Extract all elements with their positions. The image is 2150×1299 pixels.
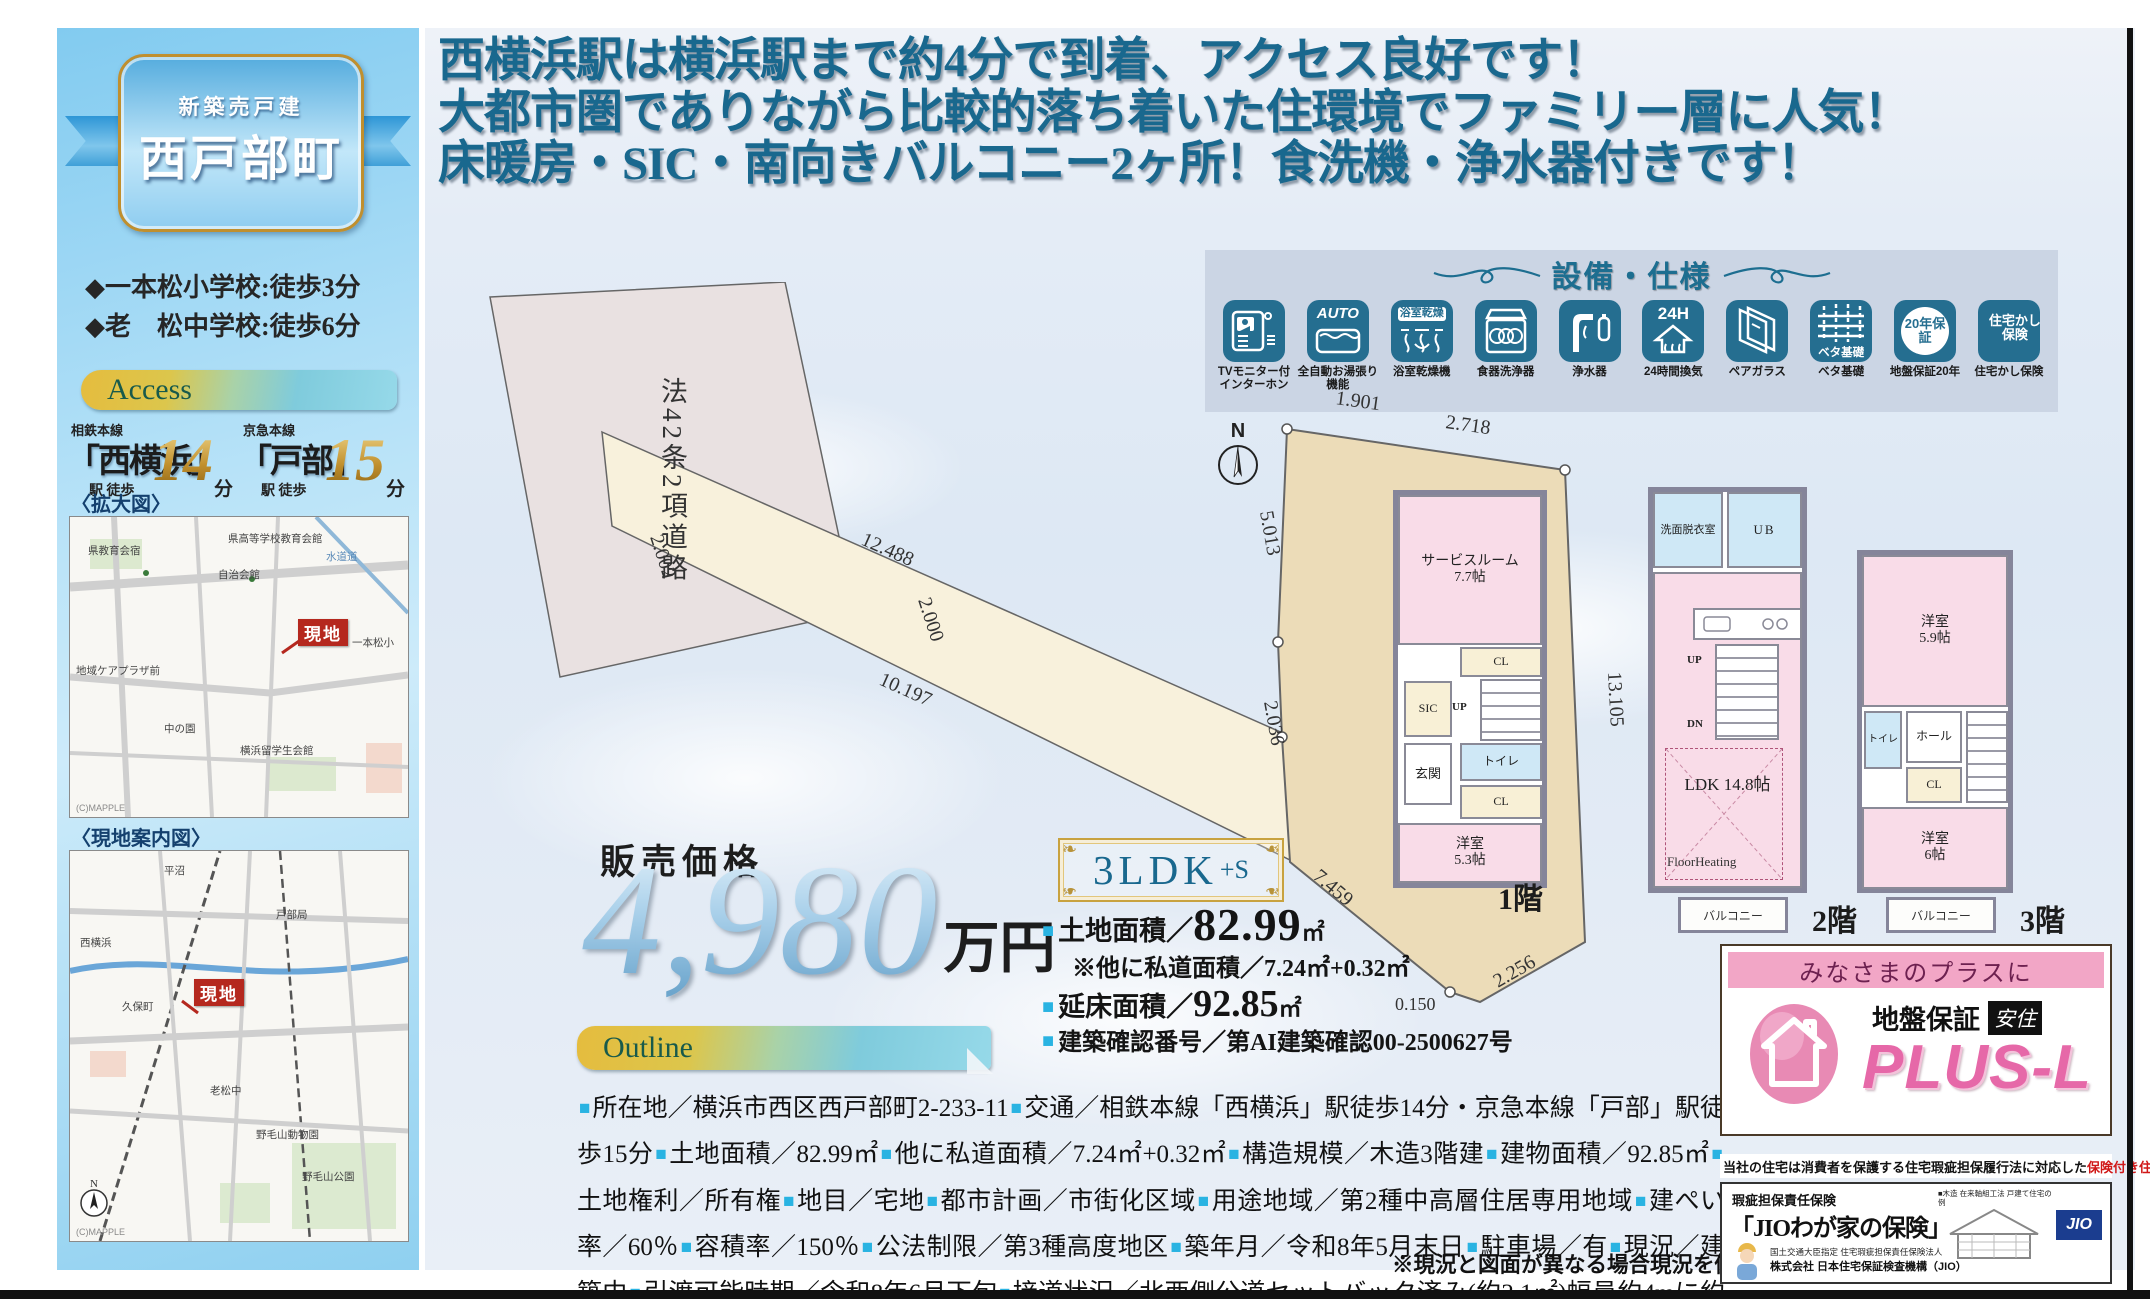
equipment-item: 20年保証 地盤保証20年 <box>1884 300 1966 392</box>
ground-warranty-icon: 20年保証 <box>1894 300 1956 362</box>
map-credit: (C)MAPPLE <box>76 803 125 813</box>
badge-subtitle: 新築売戸建 <box>121 91 361 121</box>
room-toilet-3f: トイレ <box>1864 711 1902 769</box>
land-area-unit: ㎡ <box>1302 920 1325 945</box>
insurance-type: 瑕疵担保責任保険 <box>1732 1190 1836 1209</box>
map1-title: 〈拡大図〉 <box>71 488 171 517</box>
map-label: 地域ケアプラザ前 <box>76 663 160 678</box>
plusl-house-icon <box>1744 998 1844 1110</box>
layout-plus: +S <box>1220 855 1249 885</box>
floor-area-line: ■延床面積／92.85㎡ <box>1042 982 1302 1026</box>
map-compass-n: N <box>90 1178 98 1190</box>
access-header: Access <box>81 370 397 410</box>
slab-badge: ベタ基礎 <box>1810 347 1872 359</box>
map-label: 中の園 <box>164 721 196 736</box>
ldk-label: LDK 14.8帖 <box>1653 770 1802 795</box>
map-label: 自治会館 <box>218 567 260 582</box>
room-size: 14.8帖 <box>1724 775 1771 794</box>
equipment-caption: 住宅かし保険 <box>1968 366 2050 379</box>
station-tobe: 京急本線 「戸部」 駅 徒歩 15 分 <box>239 420 411 516</box>
room-size: 5.3帖 <box>1454 853 1486 869</box>
slab-foundation-icon: ベタ基礎 <box>1810 300 1872 362</box>
room-size: 6帖 <box>1925 848 1946 864</box>
land-area-label: 土地面積／ <box>1058 916 1193 946</box>
house-section-icon <box>1942 1208 2046 1264</box>
flourish-right-icon <box>1722 262 1832 286</box>
room-western-59: 洋室 5.9帖 <box>1862 555 2008 707</box>
price-amount: 4,980 <box>582 842 938 1000</box>
room-label: 洋室 <box>1921 615 1949 631</box>
dimension-label: 2.718 <box>1444 411 1492 439</box>
price-unit: 万円 <box>944 903 1056 1000</box>
layout-badge: ❧ ❧ ❧ ❧ 3LDK +S <box>1058 838 1284 902</box>
ventilation-badge: 24H <box>1642 305 1704 323</box>
stairs-dn-label: DN <box>1687 718 1703 730</box>
jio-company: 株式会社 日本住宅保証検査機構（JIO） <box>1770 1258 1967 1274</box>
private-road-line: ※他に私道面積／7.24㎡+0.32㎡ <box>1072 948 1410 983</box>
balcony-2f: バルコニー <box>1678 897 1788 933</box>
flyer-page: 新築売戸建 西戸部町 ◆一本松小学校:徒歩3分 ◆老 松中学校:徒歩6分 Acc… <box>0 0 2150 1299</box>
outline-header-label: Outline <box>603 1031 693 1065</box>
insurance-badge: 住宅かし保険 <box>1978 314 2040 341</box>
map-label: 野毛山公園 <box>302 1169 355 1184</box>
floor-label-1f: 1階 <box>1498 874 1543 918</box>
private-road-note: ※他に私道面積／7.24㎡+0.32㎡ <box>1072 956 1410 982</box>
floor-heating-label: FloorHeating <box>1667 854 1736 870</box>
insurance-title: 「JIOわが家の保険」 <box>1730 1208 1951 1243</box>
badge-title: 西戸部町 <box>121 119 361 189</box>
lead-black-1: 当社の住宅は消費者を保護する住宅瑕疵担保履行法に対応した <box>1723 1157 2087 1176</box>
walk-minutes: 15 <box>325 426 385 495</box>
floor-area-value: 92.85 <box>1193 983 1279 1025</box>
room-label: サービスルーム <box>1421 554 1519 570</box>
room-closet-1: CL <box>1460 647 1542 677</box>
floorplan-2f: 洗面脱衣室 UB UP DN LDK 14.8帖 FloorHeating <box>1648 487 1807 893</box>
dimension-label: 1.901 <box>1334 387 1382 415</box>
room-size: 7.7帖 <box>1454 570 1486 586</box>
floorplan-1f: サービスルーム 7.7帖 CL UP SIC トイレ 玄関 CL 洋室 5.3帖 <box>1393 490 1547 888</box>
room-washroom: 洗面脱衣室 <box>1653 492 1723 568</box>
dimension-label: 13.105 <box>1603 671 1628 727</box>
floor-area-label: 延床面積／ <box>1058 992 1193 1022</box>
private-road-polygon <box>602 432 1290 860</box>
land-area-value: 82.99 <box>1193 899 1302 950</box>
equipment-item: ペアガラス <box>1716 300 1798 392</box>
walk-label: 駅 徒歩 <box>261 480 307 500</box>
plusl-box: みなさまのプラスに 地盤保証 安住 PLUS-L <box>1720 944 2112 1136</box>
site-marker: 現地 <box>194 979 244 1006</box>
outline-header: Outline <box>577 1026 991 1070</box>
room-western-6: 洋室 6帖 <box>1862 807 2008 889</box>
corner-ornament-icon: ❧ <box>1062 840 1080 858</box>
stairs-2f <box>1715 644 1779 740</box>
equipment-caption: 地盤保証20年 <box>1884 366 1966 379</box>
anju-badge: 安住 <box>1988 1001 2042 1035</box>
layout-main: 3LDK <box>1093 846 1218 894</box>
room-toilet-1f: トイレ <box>1460 743 1542 781</box>
equipment-item: ベタ基礎 ベタ基礎 <box>1800 300 1882 392</box>
walk-unit: 分 <box>386 474 405 501</box>
room-entrance: 玄関 <box>1404 743 1452 805</box>
map-label: 県教育会宿 <box>88 543 141 558</box>
kitchen-counter <box>1693 608 1802 640</box>
fold-corner <box>967 1048 993 1074</box>
equipment-caption: ペアガラス <box>1716 366 1798 379</box>
bullet-square: ■ <box>1042 996 1054 1018</box>
room-label: 洋室 <box>1921 832 1949 848</box>
room-service: サービスルーム 7.7帖 <box>1398 495 1542 645</box>
headline: 西横浜駅は横浜駅まで約4分で到着、アクセス良好です！ 大都市圏でありながら比較的… <box>438 36 2130 191</box>
land-area-line: ■土地面積／82.99㎡ <box>1042 898 1325 951</box>
stairs-3f <box>1966 711 2008 803</box>
walk-unit: 分 <box>214 474 233 501</box>
equipment-item: 住宅かし保険 住宅かし保険 <box>1968 300 2050 392</box>
site-marker: 現地 <box>298 619 348 646</box>
map-label: 久保町 <box>122 999 154 1014</box>
defect-insurance-icon: 住宅かし保険 <box>1978 300 2040 362</box>
room-unit-bath: UB <box>1727 492 1802 568</box>
map-label: 平沼 <box>164 863 185 878</box>
bullet-square: ■ <box>1042 1030 1054 1052</box>
stairs-up-label: UP <box>1452 701 1467 713</box>
enlarged-map: 県教育会宿 自治会館 県高等学校教育会館 地域ケアプラザ前 中の園 横浜留学生会… <box>69 516 409 818</box>
dimension-label: 5.013 <box>1255 509 1284 557</box>
stairs-1f <box>1480 679 1542 741</box>
map2-roads: N <box>70 851 408 1241</box>
walk-minutes: 14 <box>153 426 213 495</box>
room-closet-3f: CL <box>1906 767 1962 803</box>
map2-title: 〈現地案内図〉 <box>71 822 211 851</box>
room-label: LDK <box>1685 775 1720 794</box>
balcony-3f: バルコニー <box>1886 897 1996 933</box>
plusl-header: みなさまのプラスに <box>1728 952 2104 988</box>
permit-line: ■建築確認番号／第AI建築確認00-2500627号 <box>1042 1022 1513 1057</box>
school-line-2: ◆老 松中学校:徒歩6分 <box>85 307 361 346</box>
lead-red: 保険付き住宅 <box>2087 1157 2150 1176</box>
worker-icon <box>1730 1240 1764 1282</box>
jio-box: 瑕疵担保責任保険 「JIOわが家の保険」 国土交通大臣指定 住宅瑕疵担保責任保険… <box>1720 1182 2112 1284</box>
floor-label-2f: 2階 <box>1812 896 1857 940</box>
property-badge: 新築売戸建 西戸部町 <box>118 54 364 232</box>
school-access: ◆一本松小学校:徒歩3分 ◆老 松中学校:徒歩6分 <box>85 268 361 346</box>
map-label: 野毛山動物園 <box>256 1127 319 1142</box>
sidebar: 新築売戸建 西戸部町 ◆一本松小学校:徒歩3分 ◆老 松中学校:徒歩6分 Acc… <box>57 28 419 1270</box>
floor-area-unit: ㎡ <box>1279 996 1302 1021</box>
insurance-lead: 当社の住宅は消費者を保護する住宅瑕疵担保履行法に対応した保険付き住宅です。 <box>1720 1154 2112 1178</box>
jio-logo: JIO <box>2056 1210 2102 1240</box>
room-hall: ホール <box>1906 711 1962 763</box>
pair-glass-icon <box>1726 300 1788 362</box>
headline-line-1: 西横浜駅は横浜駅まで約4分で到着、アクセス良好です！ <box>438 36 2130 88</box>
permit-number: 建築確認番号／第AI建築確認00-2500627号 <box>1058 1030 1513 1056</box>
dimension-label: 0.150 <box>1395 994 1436 1014</box>
headline-line-2: 大都市圏でありながら比較的落ち着いた住環境でファミリー層に人気！ <box>438 88 2130 140</box>
map-label: 西横浜 <box>80 935 112 950</box>
price: 4,980 万円 <box>582 842 1056 1000</box>
area-guide-map: N 平沼 西横浜 久保町 戸部局 老松中 野毛山公園 野毛山動物園 現地 (C)… <box>69 850 409 1242</box>
map-label: 水道道 <box>326 549 358 564</box>
map-label: 老松中 <box>210 1083 242 1098</box>
map-label: 戸部局 <box>276 907 308 922</box>
page-border-bottom <box>0 1290 2150 1299</box>
stairs-up-label: UP <box>1687 654 1702 666</box>
room-size: 5.9帖 <box>1919 631 1951 647</box>
bullet-square: ■ <box>1042 920 1054 942</box>
equipment-caption: ベタ基礎 <box>1800 366 1882 379</box>
diagram-caption: ■木造 在来軸組工法 戸建て住宅の例 <box>1938 1189 2058 1207</box>
room-sic: SIC <box>1404 681 1452 737</box>
corner-ornament-icon: ❧ <box>1262 840 1280 858</box>
floor-label-3f: 3階 <box>2020 896 2065 940</box>
headline-line-3: 床暖房・SIC・南向きバルコニー2ヶ所！食洗機・浄水器付きです！ <box>438 139 2130 191</box>
map-label: 県高等学校教育会館 <box>228 531 323 546</box>
school-line-1: ◆一本松小学校:徒歩3分 <box>85 268 361 307</box>
room-label: 洋室 <box>1456 837 1484 853</box>
room-closet-2: CL <box>1460 785 1542 819</box>
map-label: 一本松小 <box>352 635 394 650</box>
ventilation-icon: 24H <box>1642 300 1704 362</box>
plusl-logo: PLUS-L <box>1862 1032 2092 1103</box>
map-label: 横浜留学生会館 <box>240 743 314 758</box>
warranty-badge: 20年保証 <box>1901 307 1949 355</box>
floorplan-3f: 洋室 5.9帖 トイレ ホール DN CL 洋室 6帖 <box>1857 550 2013 893</box>
page-border-right <box>2127 28 2133 1291</box>
map-credit: (C)MAPPLE <box>76 1227 125 1237</box>
jio-designation: 国土交通大臣指定 住宅瑕疵担保責任保険法人 <box>1770 1246 1942 1258</box>
